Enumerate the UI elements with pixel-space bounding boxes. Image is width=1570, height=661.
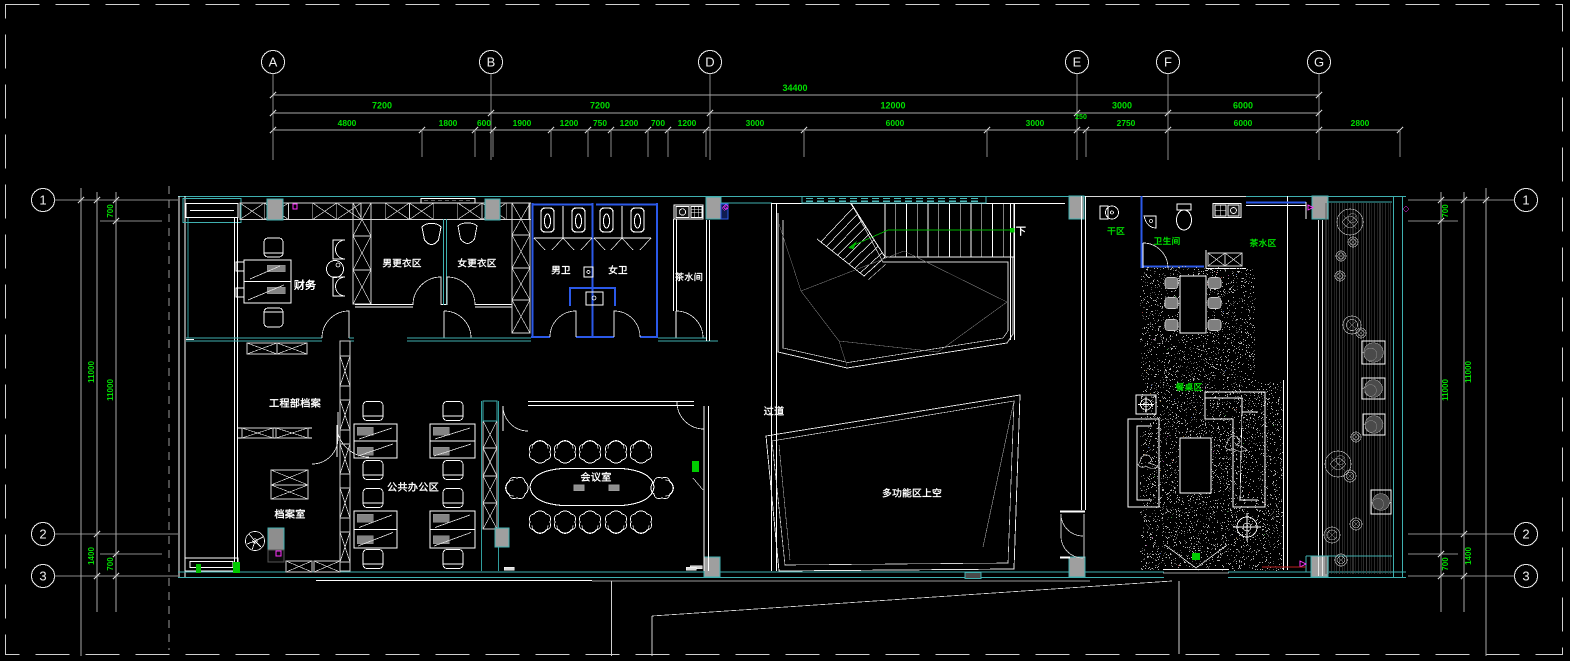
svg-text:E: E: [1073, 55, 1082, 70]
svg-text:F: F: [1164, 55, 1172, 70]
svg-text:1200: 1200: [560, 118, 579, 128]
svg-text:1900: 1900: [513, 118, 532, 128]
svg-text:12000: 12000: [880, 101, 905, 111]
svg-text:3000: 3000: [746, 118, 765, 128]
svg-text:2: 2: [39, 527, 46, 542]
svg-text:1: 1: [39, 193, 46, 208]
svg-text:11000: 11000: [106, 379, 115, 401]
svg-text:11000: 11000: [1464, 361, 1473, 383]
svg-text:700: 700: [106, 557, 115, 571]
svg-text:G: G: [1314, 55, 1324, 70]
svg-text:1800: 1800: [439, 118, 458, 128]
svg-text:B: B: [487, 55, 496, 70]
svg-text:700: 700: [1441, 557, 1450, 571]
svg-text:700: 700: [106, 204, 115, 218]
svg-text:6000: 6000: [1234, 118, 1253, 128]
svg-text:7200: 7200: [590, 101, 610, 111]
svg-text:1200: 1200: [620, 118, 639, 128]
svg-text:11000: 11000: [87, 361, 96, 383]
svg-text:7200: 7200: [372, 101, 392, 111]
svg-text:750: 750: [593, 118, 607, 128]
svg-text:2: 2: [1522, 527, 1529, 542]
svg-text:3000: 3000: [1112, 101, 1132, 111]
svg-text:700: 700: [1441, 204, 1450, 218]
svg-text:A: A: [269, 55, 278, 70]
svg-text:1: 1: [1522, 193, 1529, 208]
svg-text:6000: 6000: [1233, 101, 1253, 111]
svg-text:3: 3: [1522, 569, 1529, 584]
svg-text:1200: 1200: [678, 118, 697, 128]
svg-text:2800: 2800: [1351, 118, 1370, 128]
svg-text:3000: 3000: [1026, 118, 1045, 128]
svg-text:11000: 11000: [1441, 379, 1450, 401]
svg-text:250: 250: [1075, 114, 1087, 121]
svg-text:D: D: [705, 55, 714, 70]
svg-text:600: 600: [477, 118, 491, 128]
svg-text:2750: 2750: [1117, 118, 1136, 128]
svg-text:700: 700: [651, 118, 665, 128]
svg-text:3: 3: [39, 569, 46, 584]
svg-text:6000: 6000: [886, 118, 905, 128]
svg-text:34400: 34400: [782, 83, 807, 93]
svg-text:1400: 1400: [87, 547, 96, 565]
svg-text:1400: 1400: [1464, 547, 1473, 565]
svg-text:4800: 4800: [338, 118, 357, 128]
